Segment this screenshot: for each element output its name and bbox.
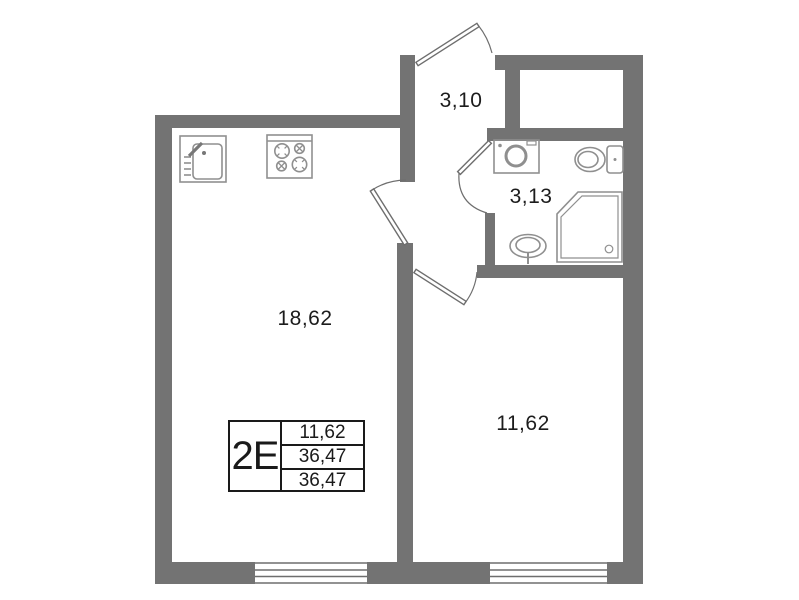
kitchen-sink-icon: [180, 136, 226, 182]
unit-info-rows: 11,62 36,47 36,47: [282, 422, 363, 490]
washing-machine-icon: [494, 140, 539, 173]
wall-middle-upper: [400, 55, 415, 182]
entrance-door: [416, 23, 492, 65]
floor-plan-drawing: 18,62 3,10 3,13 11,62: [0, 0, 799, 600]
wall-bedroom-top: [477, 265, 643, 278]
bedroom-door: [414, 269, 477, 304]
wall-left: [155, 115, 172, 584]
bathroom-area-label: 3,13: [510, 185, 553, 208]
walls: [155, 55, 643, 584]
doors: [370, 23, 492, 304]
wall-bathroom-top: [487, 128, 623, 141]
bathroom-door: [458, 141, 492, 213]
wall-bottom-c: [607, 562, 643, 584]
stove-icon: [267, 135, 312, 178]
wall-top-right: [495, 55, 643, 70]
unit-overall-area-value: 36,47: [282, 470, 363, 492]
wall-shaft-left: [505, 70, 520, 128]
kitchen-window: [255, 562, 367, 584]
unit-type-label: 2E: [230, 422, 282, 490]
wall-bottom-a: [155, 562, 255, 584]
wall-right: [623, 55, 643, 584]
shower-cabin-icon: [557, 192, 622, 262]
wall-kitchen-top: [155, 115, 402, 128]
wall-bottom-b: [367, 562, 490, 584]
bedroom-window: [490, 562, 607, 584]
unit-info-table: 2E 11,62 36,47 36,47: [228, 420, 365, 492]
wash-basin-icon: [510, 235, 546, 265]
kitchen-living-area-label: 18,62: [277, 307, 332, 330]
wall-middle-lower: [397, 243, 413, 562]
unit-living-area-value: 11,62: [282, 422, 363, 446]
unit-total-area-value: 36,47: [282, 446, 363, 470]
hallway-area-label: 3,10: [440, 89, 483, 112]
bedroom-area-label: 11,62: [496, 412, 550, 435]
kitchen-door: [370, 180, 407, 245]
floor-plan: 18,62 3,10 3,13 11,62 2E 11,62 36,47 36,…: [0, 0, 799, 600]
toilet-icon: [575, 146, 623, 173]
